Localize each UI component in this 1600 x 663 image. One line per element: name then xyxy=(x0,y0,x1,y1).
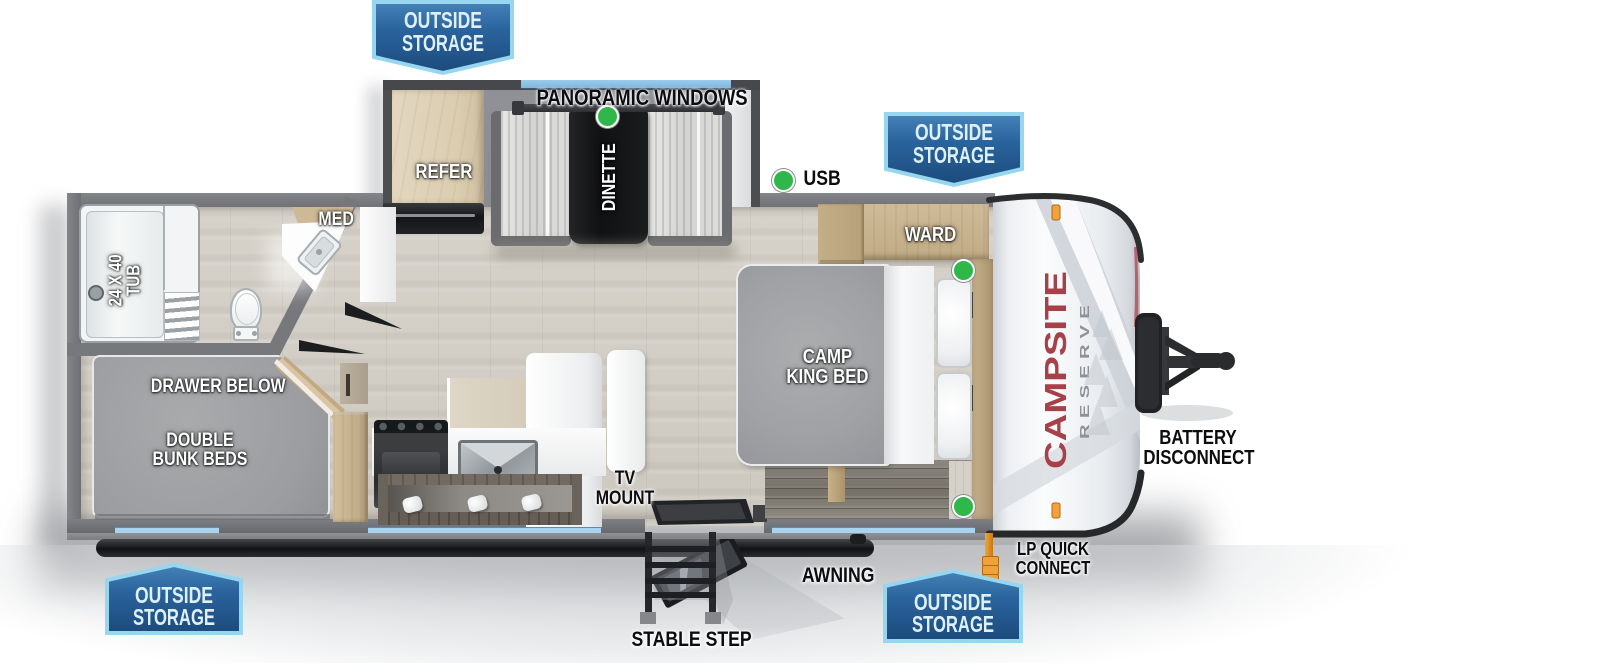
svg-text:STORAGE: STORAGE xyxy=(133,604,215,630)
svg-text:RESERVE: RESERVE xyxy=(1077,299,1092,439)
svg-text:CAMPSITE: CAMPSITE xyxy=(1038,271,1073,469)
svg-text:STORAGE: STORAGE xyxy=(402,30,484,56)
svg-text:STORAGE: STORAGE xyxy=(912,611,994,637)
svg-text:STORAGE: STORAGE xyxy=(913,142,995,168)
